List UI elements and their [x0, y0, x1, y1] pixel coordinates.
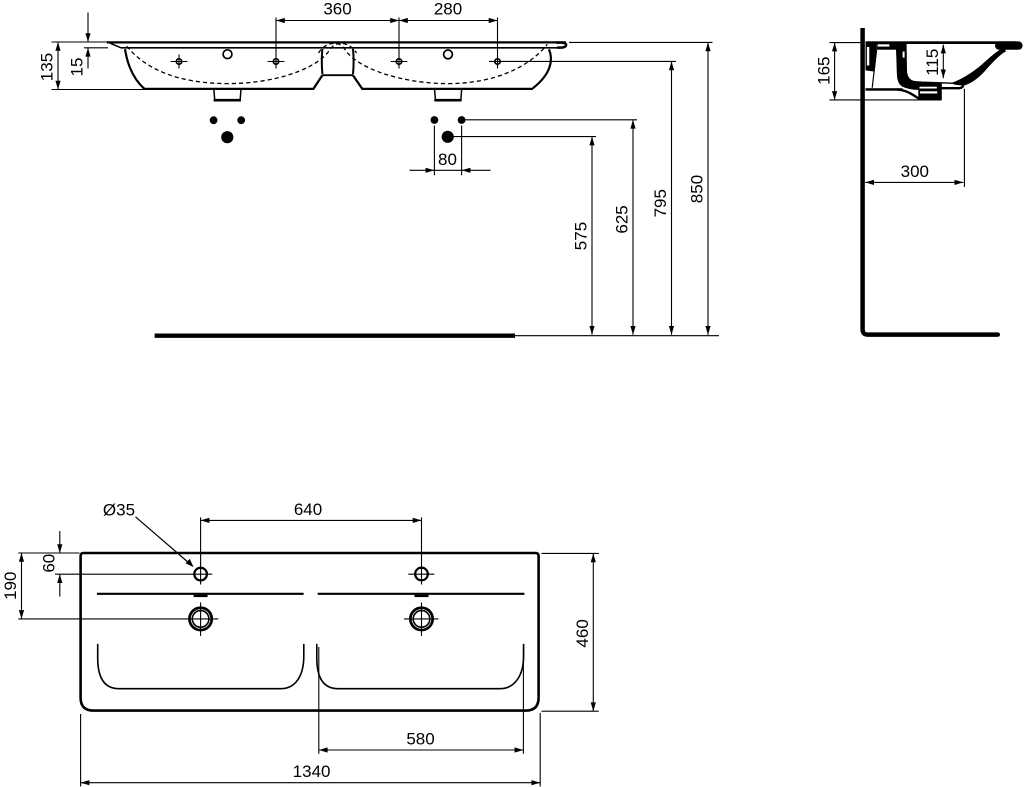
svg-text:300: 300 — [901, 162, 929, 181]
svg-text:850: 850 — [688, 175, 707, 203]
svg-text:280: 280 — [434, 0, 462, 19]
svg-text:Ø35: Ø35 — [103, 501, 135, 520]
svg-text:625: 625 — [613, 205, 632, 233]
svg-text:580: 580 — [406, 730, 434, 749]
svg-text:575: 575 — [572, 222, 591, 250]
svg-text:60: 60 — [40, 554, 59, 573]
svg-text:15: 15 — [68, 58, 87, 77]
svg-text:460: 460 — [573, 619, 592, 647]
svg-text:795: 795 — [651, 189, 670, 217]
svg-text:80: 80 — [438, 150, 457, 169]
svg-text:190: 190 — [1, 572, 20, 600]
svg-text:640: 640 — [294, 500, 322, 519]
svg-text:135: 135 — [38, 53, 57, 81]
svg-text:165: 165 — [814, 57, 833, 85]
svg-text:360: 360 — [323, 0, 351, 19]
svg-text:115: 115 — [923, 49, 942, 76]
svg-text:1340: 1340 — [293, 762, 331, 781]
